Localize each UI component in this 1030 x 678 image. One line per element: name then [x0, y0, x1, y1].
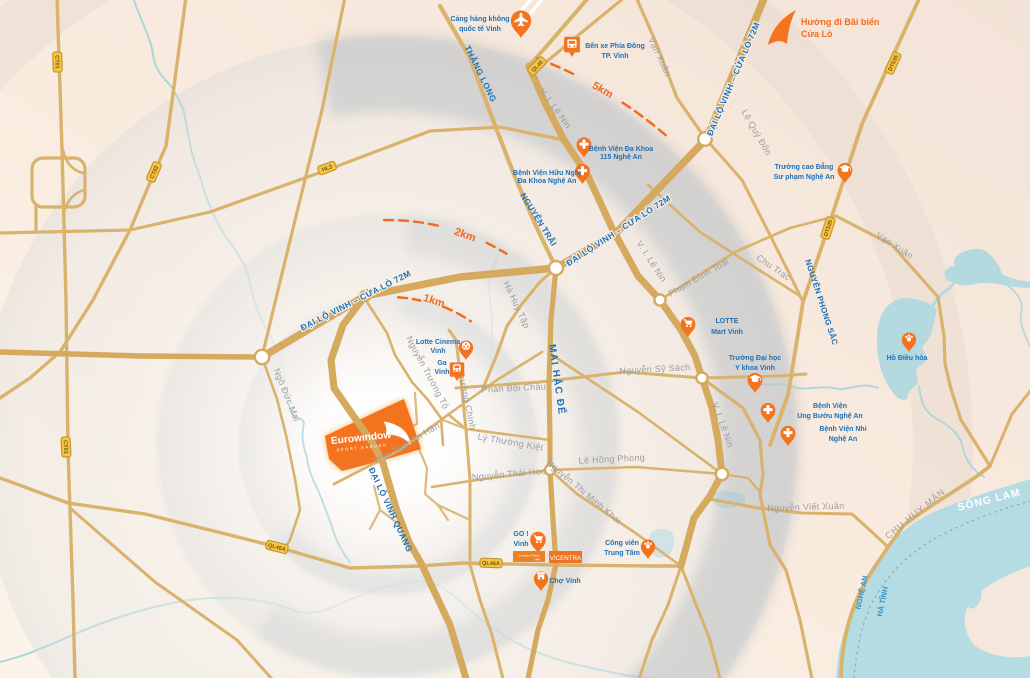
svg-text:LOTTE: LOTTE [716, 318, 739, 325]
svg-text:115 Nghệ An: 115 Nghệ An [600, 154, 642, 161]
svg-text:VİCENTRA: VİCENTRA [550, 555, 582, 562]
svg-text:Bệnh Viện Đa Khoa: Bệnh Viện Đa Khoa [589, 146, 654, 153]
svg-text:Bệnh Viện Hữu Nghị: Bệnh Viện Hữu Nghị [513, 170, 581, 177]
svg-text:Vinh: Vinh [430, 348, 445, 355]
svg-text:Sư phạm Nghệ An: Sư phạm Nghệ An [774, 174, 835, 181]
svg-text:Bến xe Phía Đông: Bến xe Phía Đông [585, 42, 645, 50]
svg-text:CT01: CT01 [62, 440, 69, 454]
svg-text:TP. Vinh: TP. Vinh [602, 53, 629, 60]
svg-text:Hồ Điều hòa: Hồ Điều hòa [887, 353, 928, 362]
svg-text:Trường Đại học: Trường Đại học [729, 355, 782, 362]
svg-text:CT01: CT01 [53, 55, 59, 69]
svg-text:Nghệ An: Nghệ An [829, 436, 858, 443]
svg-text:Bệnh Viện Nhi: Bệnh Viện Nhi [819, 426, 866, 433]
svg-text:Lotte Cinema: Lotte Cinema [416, 339, 460, 346]
svg-text:Vinh: Vinh [513, 541, 528, 548]
svg-text:Ga: Ga [437, 360, 446, 367]
svg-text:Cảng hàng không: Cảng hàng không [450, 16, 509, 23]
svg-text:Hướng đi Bãi biển: Hướng đi Bãi biển [801, 17, 879, 27]
svg-text:Mart Vinh: Mart Vinh [711, 329, 743, 336]
svg-text:Cửa Lò: Cửa Lò [801, 29, 833, 39]
svg-text:Vinh: Vinh [434, 369, 449, 376]
svg-text:Trung Tâm: Trung Tâm [604, 550, 640, 557]
svg-text:Y khoa Vinh: Y khoa Vinh [735, 365, 775, 372]
svg-text:QL46A: QL46A [482, 561, 500, 568]
svg-text:Sunshine Tower: Sunshine Tower [518, 554, 539, 558]
svg-text:GO !: GO ! [513, 531, 528, 538]
svg-text:Đa Khoa Nghệ An: Đa Khoa Nghệ An [518, 178, 577, 185]
svg-text:Ung Bướu Nghệ An: Ung Bướu Nghệ An [797, 413, 862, 420]
svg-text:VINH: VINH [534, 559, 540, 562]
svg-text:quốc tế Vinh: quốc tế Vinh [459, 25, 501, 33]
svg-text:Chợ Vinh: Chợ Vinh [549, 578, 580, 585]
svg-text:Trường cao Đẳng: Trường cao Đẳng [775, 162, 834, 171]
svg-text:Bệnh Viện: Bệnh Viện [813, 403, 847, 410]
svg-text:Công viên: Công viên [605, 540, 639, 547]
